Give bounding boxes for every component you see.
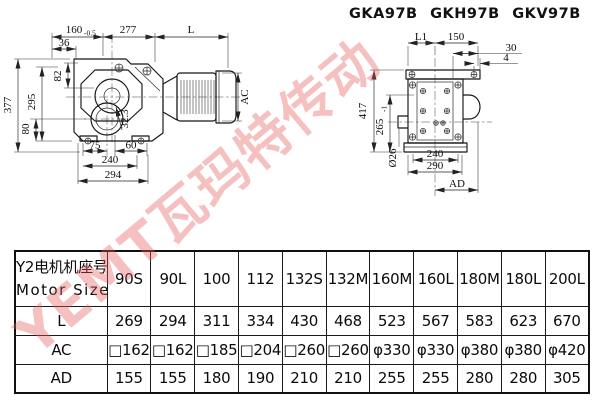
row-label-L: L [15, 306, 107, 335]
cell-L-132m: 468 [326, 306, 370, 335]
drawing-title: GKA97B GKH97B GKV97B [349, 6, 581, 22]
cell-AC-132s: □260 [282, 335, 326, 364]
dim-label-82: 82 [52, 71, 64, 82]
col-header-112: 112 [238, 251, 282, 306]
dim-label-AC: AC [239, 89, 251, 104]
cell-L-180l: 623 [501, 306, 545, 335]
cell-AC-160l: φ330 [414, 335, 458, 364]
dim-label-AD: AD [449, 178, 465, 190]
cell-L-100: 311 [195, 306, 239, 335]
dim-label-150: 150 [448, 31, 465, 43]
table-row-AD: AD 155 155 180 190 210 210 255 255 280 2… [15, 364, 589, 393]
cell-L-160m: 523 [370, 306, 414, 335]
cell-AD-90l: 155 [151, 364, 195, 393]
dim-label-265-tolerance: -1 [380, 106, 389, 112]
dimension-table: Y2电机机座号 Motor Size 90S 90L 100 112 132S … [14, 250, 590, 394]
motor-size-header-en: Motor Size [16, 279, 107, 302]
dim-label-417: 417 [357, 102, 369, 119]
col-header-180m: 180M [458, 251, 502, 306]
cell-L-90s: 269 [107, 306, 151, 335]
col-header-90s: 90S [107, 251, 151, 306]
motor-size-header: Y2电机机座号 Motor Size [15, 251, 107, 306]
plate-bolt-icon [409, 72, 477, 78]
cell-L-132s: 430 [282, 306, 326, 335]
cell-AC-180l: φ380 [501, 335, 545, 364]
cell-AC-200l: φ420 [545, 335, 589, 364]
cell-AD-132s: 210 [282, 364, 326, 393]
cell-AD-160m: 255 [370, 364, 414, 393]
dim-label-4: 4 [503, 52, 509, 64]
dim-label-dia26: Ø26 [387, 148, 399, 167]
dim-label-L1: L1 [415, 31, 427, 43]
dim-label-377: 377 [2, 96, 14, 113]
dim-label-60: 60 [126, 140, 138, 152]
dim-label-265: 265 [374, 118, 386, 135]
dim-label-160-tolerance: -0.5 [84, 29, 96, 38]
cell-AD-112: 190 [238, 364, 282, 393]
cell-AC-132m: □260 [326, 335, 370, 364]
dim-label-160: 160 [66, 24, 83, 36]
cell-L-160l: 567 [414, 306, 458, 335]
cell-AC-180m: φ380 [458, 335, 502, 364]
cell-AC-100: □185 [195, 335, 239, 364]
table-row-AC: AC □162 □162 □185 □204 □260 □260 φ330 φ3… [15, 335, 589, 364]
table-row-L: L 269 294 311 334 430 468 523 567 583 62… [15, 306, 589, 335]
col-header-90l: 90L [151, 251, 195, 306]
cell-AD-180m: 280 [458, 364, 502, 393]
dim-label-32-3: 32.3 [119, 109, 131, 129]
cell-L-200l: 670 [545, 306, 589, 335]
dim-label-295: 295 [26, 93, 38, 110]
catalog-page: 160 -0.5 277 L 36 377 295 80 82 75 60 24… [0, 0, 600, 410]
left-view-drawing: 160 -0.5 277 L 36 377 295 80 82 75 60 24… [2, 24, 251, 184]
col-header-160l: 160L [414, 251, 458, 306]
col-header-100: 100 [195, 251, 239, 306]
cell-AD-132m: 210 [326, 364, 370, 393]
row-label-AD: AD [15, 364, 107, 393]
cell-AD-90s: 155 [107, 364, 151, 393]
cell-AC-160m: φ330 [370, 335, 414, 364]
dim-label-75: 75 [90, 140, 102, 152]
col-header-200l: 200L [545, 251, 589, 306]
dim-label-290: 290 [427, 160, 444, 172]
cell-AC-112: □204 [238, 335, 282, 364]
dim-label-80: 80 [20, 123, 32, 135]
col-header-132s: 132S [282, 251, 326, 306]
technical-drawings: 160 -0.5 277 L 36 377 295 80 82 75 60 24… [0, 0, 600, 248]
dim-label-294: 294 [105, 169, 122, 181]
cell-AD-160l: 255 [414, 364, 458, 393]
row-label-AC: AC [15, 335, 107, 364]
dim-label-L: L [188, 24, 195, 36]
col-header-160m: 160M [370, 251, 414, 306]
cell-L-180m: 583 [458, 306, 502, 335]
col-header-180l: 180L [501, 251, 545, 306]
table-header-row: Y2电机机座号 Motor Size 90S 90L 100 112 132S … [15, 251, 589, 306]
cell-AD-180l: 280 [501, 364, 545, 393]
cell-AD-200l: 305 [545, 364, 589, 393]
motor-size-header-cn: Y2电机机座号 [16, 256, 107, 279]
cell-L-112: 334 [238, 306, 282, 335]
right-view-drawing: L1 150 30 4 417 265 -1 Ø26 240 [357, 31, 522, 196]
cell-AD-100: 180 [195, 364, 239, 393]
dim-label-240-right: 240 [427, 148, 444, 160]
cell-L-90l: 294 [151, 306, 195, 335]
dim-label-277: 277 [120, 24, 137, 36]
col-header-132m: 132M [326, 251, 370, 306]
dim-label-36: 36 [59, 37, 71, 49]
cell-AC-90s: □162 [107, 335, 151, 364]
dim-label-240-left: 240 [102, 154, 119, 166]
cell-AC-90l: □162 [151, 335, 195, 364]
